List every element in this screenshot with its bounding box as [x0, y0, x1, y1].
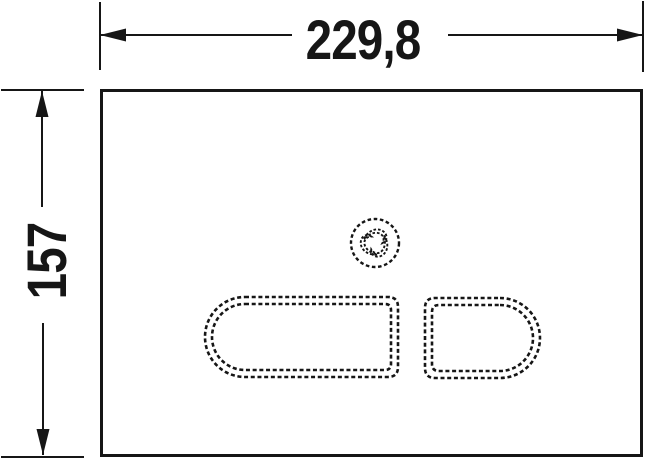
technical-drawing-page: 229,8 157: [0, 0, 647, 463]
large-flush-button-inner-outline: [212, 304, 391, 370]
small-flush-button: [425, 298, 540, 378]
small-flush-button-outer-outline: [425, 298, 540, 378]
flush-plate-dimension-drawing: 229,8 157: [0, 0, 647, 463]
height-dimension-label: 157: [16, 223, 78, 300]
width-dimension-label: 229,8: [306, 9, 421, 71]
swirl-icon-arms: [357, 229, 392, 259]
dimension-annotations: 229,8 157: [16, 9, 643, 455]
arrow-right-icon: [617, 29, 643, 42]
flush-plate-outline: [102, 91, 642, 456]
swirl-arm: [364, 229, 387, 243]
arrow-down-icon: [37, 429, 50, 455]
large-flush-button-outer-outline: [205, 297, 398, 377]
swirl-icon: [351, 219, 399, 267]
swirl-arm: [357, 233, 380, 259]
small-flush-button-inner-outline: [432, 305, 533, 371]
swirl-icon-circle: [351, 219, 399, 267]
large-flush-button: [205, 297, 398, 377]
drawing-root: 229,8 157: [1, 1, 643, 457]
arrow-up-icon: [36, 91, 49, 117]
arrow-left-icon: [100, 29, 126, 42]
